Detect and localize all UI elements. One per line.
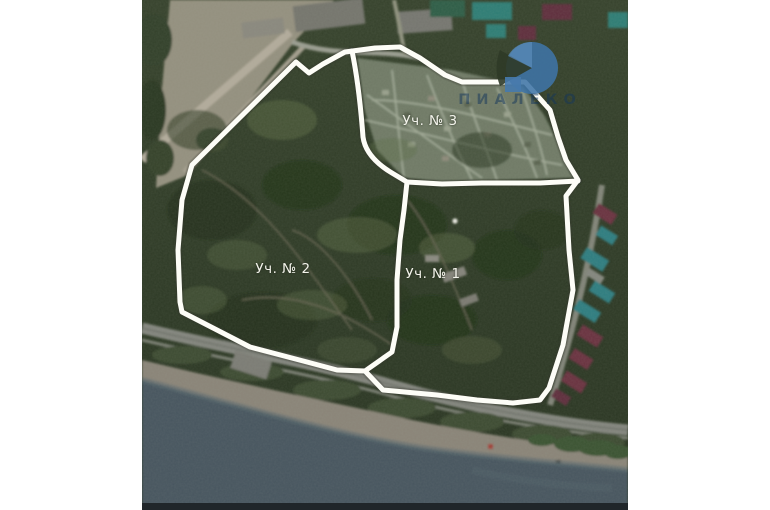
image-bottom-band [142, 503, 628, 510]
watermark-square-icon [505, 77, 521, 92]
plot-3-label: Уч. № 3 [402, 113, 457, 129]
watermark-text: ПИАЛЕКО [458, 92, 582, 108]
page-canvas: ПИАЛЕКО Уч. № 3 Уч. № 2 Уч. № 1 [0, 0, 770, 510]
satellite-imagery: ПИАЛЕКО Уч. № 3 Уч. № 2 Уч. № 1 [142, 0, 628, 510]
inner-boundary-line-horizontal [407, 181, 578, 184]
plot-2-label: Уч. № 2 [255, 261, 310, 277]
plot-1-label: Уч. № 1 [405, 266, 460, 282]
satellite-map-image: ПИАЛЕКО Уч. № 3 Уч. № 2 Уч. № 1 [142, 0, 628, 510]
